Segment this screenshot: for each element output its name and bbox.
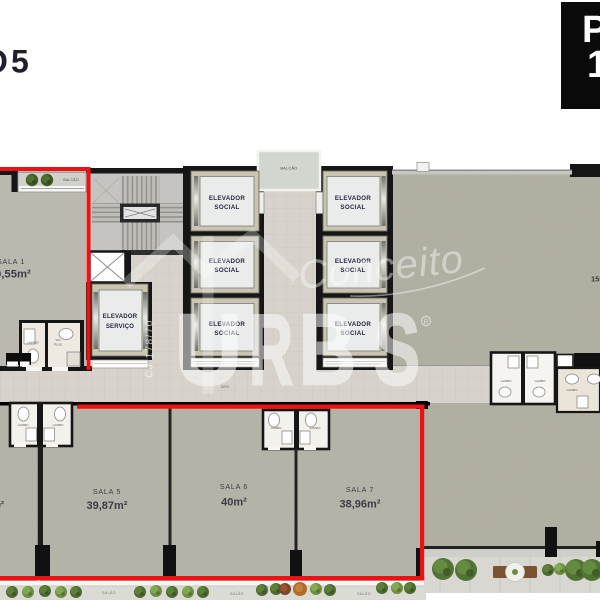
svg-text:SALÃO: SALÃO: [357, 591, 371, 596]
svg-text:0,55m²: 0,55m²: [0, 269, 31, 281]
svg-text:R: R: [423, 319, 428, 326]
svg-text:LAVABO: LAVABO: [271, 426, 283, 430]
svg-text:SALÃO: SALÃO: [230, 591, 244, 596]
svg-text:SALÃO: SALÃO: [102, 590, 116, 595]
svg-text:38,96m²: 38,96m²: [340, 499, 381, 511]
svg-text:BALCÃO: BALCÃO: [281, 166, 298, 171]
svg-text:ELEVADOR: ELEVADOR: [209, 195, 246, 202]
svg-text:PLUS: PLUS: [54, 343, 62, 347]
svg-text:m²: m²: [0, 499, 4, 509]
svg-text:U: U: [175, 294, 242, 406]
svg-text:LAVABO: LAVABO: [53, 423, 65, 427]
svg-text:B: B: [299, 294, 356, 406]
svg-text:S: S: [374, 294, 420, 406]
svg-text:SALA 1: SALA 1: [0, 257, 25, 266]
svg-text:SOCIAL: SOCIAL: [340, 204, 365, 211]
svg-text:BALCÃO: BALCÃO: [63, 177, 79, 182]
svg-text:WC: WC: [56, 338, 62, 342]
svg-text:O: O: [0, 44, 8, 80]
svg-text:LAVABO: LAVABO: [310, 426, 322, 430]
svg-text:CJ 178/70: CJ 178/70: [144, 319, 156, 378]
svg-text:SALA 7: SALA 7: [346, 485, 374, 494]
svg-text:155: 155: [591, 275, 600, 284]
svg-text:5: 5: [11, 44, 29, 80]
svg-text:ELEVADOR: ELEVADOR: [103, 314, 138, 320]
svg-text:R: R: [249, 294, 293, 406]
svg-text:SALA 5: SALA 5: [93, 487, 121, 496]
svg-text:40m²: 40m²: [221, 497, 247, 509]
svg-text:SALA 6: SALA 6: [220, 482, 248, 491]
svg-text:SERVIÇO: SERVIÇO: [106, 324, 134, 330]
svg-text:LAVABO: LAVABO: [18, 423, 30, 427]
svg-text:SOCIAL: SOCIAL: [214, 204, 239, 211]
svg-text:LAVABO: LAVABO: [567, 388, 579, 392]
svg-text:LAVABO: LAVABO: [27, 341, 39, 345]
svg-text:ELEVADOR: ELEVADOR: [335, 195, 372, 202]
svg-text:LAVABO: LAVABO: [535, 379, 547, 383]
svg-text:LAVABO: LAVABO: [501, 379, 513, 383]
svg-text:15: 15: [587, 44, 600, 86]
svg-text:39,87m²: 39,87m²: [87, 500, 128, 512]
